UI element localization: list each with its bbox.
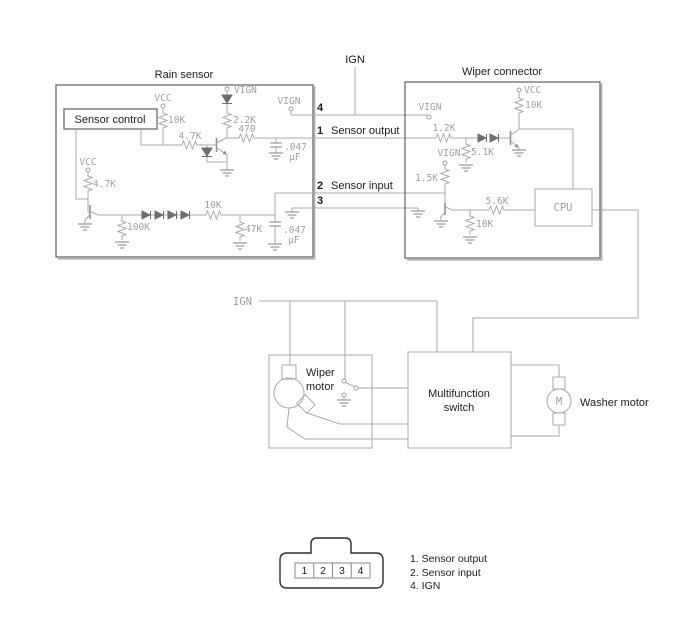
- motor-section: IGN Wiper motor Multifunction switch M W…: [233, 296, 649, 448]
- diode-icon: [478, 134, 487, 142]
- connector-pin-lines: IGN 4 1 Sensor output 2 Sensor input 3: [259, 54, 445, 208]
- wire: [519, 117, 573, 189]
- wire: [207, 157, 227, 162]
- circuit-diagram: Rain sensor Sensor control VCC 10K 4.7K …: [0, 0, 700, 640]
- ground-icon: [233, 243, 247, 249]
- resistor-icon: [159, 110, 167, 132]
- diode-icon: [181, 211, 190, 219]
- resistor-icon: [203, 211, 226, 219]
- switch-contact-icon: [354, 386, 358, 390]
- ground-icon: [512, 150, 526, 156]
- wiper-motor-icon: [274, 378, 304, 408]
- wiper-motor-label-1: Wiper: [306, 367, 335, 379]
- pin1-name: Sensor output: [331, 125, 400, 137]
- resistor-label: 47K: [245, 224, 262, 235]
- resistor-icon: [179, 141, 202, 149]
- terminal-icon: [161, 104, 165, 108]
- ground-icon: [463, 237, 477, 243]
- pin4-number: 4: [317, 102, 324, 114]
- resistor-icon: [433, 134, 456, 142]
- resistor-label: 5.6K: [486, 196, 509, 207]
- ground-icon: [78, 224, 92, 230]
- ground-icon: [269, 153, 283, 159]
- ground-icon: [268, 244, 282, 250]
- transistor-leads: [441, 207, 453, 221]
- wiper-connector-title: Wiper connector: [462, 66, 542, 78]
- connector-pin-2: 2: [320, 565, 326, 577]
- resistor-label: 1.5K: [415, 173, 438, 184]
- vign-label: VIGN: [438, 148, 461, 159]
- ign-lower-label: IGN: [233, 296, 252, 308]
- ground-icon: [434, 221, 448, 227]
- resistor-icon: [515, 95, 523, 117]
- vign-label: VIGN: [419, 102, 442, 113]
- connector-pin-3: 3: [339, 565, 345, 577]
- pin3-number: 3: [317, 195, 323, 207]
- vcc-label: VCC: [524, 85, 541, 96]
- terminal-icon: [517, 88, 521, 92]
- motor-terminal-tab: [553, 377, 565, 389]
- resistor-label: 10K: [476, 219, 493, 230]
- resistor-icon: [486, 206, 509, 214]
- wiper-connector-block: Wiper connector VIGN 1.2K 5.1K VCC 10K V…: [405, 66, 638, 352]
- pin1-number: 1: [317, 125, 323, 137]
- rain-sensor-block: Rain sensor Sensor control VCC 10K 4.7K …: [56, 69, 315, 259]
- vcc-label: VCC: [79, 157, 96, 168]
- switch-blade: [344, 383, 408, 401]
- ign-top-label: IGN: [345, 54, 365, 66]
- capacitor-icon: [270, 143, 282, 147]
- diode-icon: [155, 211, 164, 219]
- rain-sensor-box: [56, 85, 313, 257]
- switch-contact-icon: [342, 393, 346, 397]
- washer-motor-label: Washer motor: [580, 397, 649, 409]
- resistor-icon: [118, 218, 126, 240]
- resistor-label: 100K: [127, 222, 150, 233]
- resistor-icon: [236, 134, 259, 142]
- ign-wires: [259, 301, 437, 379]
- cpu-output-wire: [473, 210, 638, 352]
- wiring-diagram-page: Rain sensor Sensor control VCC 10K 4.7K …: [0, 0, 700, 640]
- washer-motor-wires: [511, 365, 559, 436]
- resistor-label: 10K: [168, 115, 185, 126]
- motor-m-label: M: [556, 396, 562, 408]
- terminal-icon: [86, 168, 90, 172]
- ground-icon: [459, 165, 473, 171]
- terminal-icon: [443, 161, 447, 165]
- motor-wire: [307, 413, 408, 424]
- resistor-label: 4.7K: [93, 179, 116, 190]
- ground-icon: [220, 170, 234, 176]
- wiper-motor-label-2: motor: [306, 381, 334, 393]
- diode-icon: [222, 95, 232, 104]
- pin2-number: 2: [317, 180, 323, 192]
- resistor-label: 5.1K: [471, 147, 494, 158]
- resistor-label: 10K: [525, 100, 542, 111]
- diode-icon: [202, 148, 212, 157]
- wire: [227, 132, 236, 138]
- terminal-icon: [289, 107, 293, 111]
- resistor-icon: [84, 173, 92, 195]
- resistor-label: 470: [238, 124, 255, 135]
- multifunction-switch-box: [408, 352, 511, 448]
- ground-icon: [411, 211, 425, 217]
- resistor-icon: [462, 141, 470, 163]
- resistor-icon: [223, 110, 231, 132]
- multifunction-label-2: switch: [444, 402, 475, 414]
- resistor-icon: [466, 213, 474, 235]
- diode-icon: [168, 211, 177, 219]
- connector-pin-4: 4: [358, 565, 364, 577]
- motor-terminal-tab: [553, 413, 565, 425]
- rain-sensor-title: Rain sensor: [155, 69, 214, 81]
- rain-sensor-box-shadow: [58, 87, 315, 259]
- connector-pin-1: 1: [301, 565, 307, 577]
- resistor-label: 10K: [204, 200, 221, 211]
- resistor-label: 1.2K: [433, 123, 456, 134]
- cpu-label: CPU: [554, 202, 573, 214]
- vign-label: VIGN: [234, 85, 257, 96]
- pin2-name: Sensor input: [331, 180, 393, 192]
- diode-icon: [490, 134, 499, 142]
- legend-line-2: 2. Sensor input: [410, 567, 481, 579]
- motor-terminal-tab: [282, 365, 296, 379]
- emitter-arrow-icon: [222, 151, 227, 155]
- resistor-icon: [236, 219, 244, 241]
- terminal-icon: [225, 87, 229, 91]
- sensor-control-label: Sensor control: [75, 114, 146, 126]
- resistor-label: 4.7K: [179, 131, 202, 142]
- switch-contact-icon: [342, 379, 346, 383]
- capacitor-icon: [269, 222, 281, 226]
- diode-icon: [142, 211, 151, 219]
- ground-icon: [115, 242, 129, 248]
- vign-pin-label: VIGN: [278, 96, 301, 107]
- capacitor-unit: µF: [288, 235, 300, 246]
- vcc-label: VCC: [154, 93, 171, 104]
- connector-pinout: 1 2 3 4 1. Sensor output 2. Sensor input…: [280, 538, 487, 592]
- ground-icon: [285, 212, 299, 218]
- terminal-icon: [427, 115, 431, 119]
- resistor-icon: [441, 166, 449, 188]
- ground-icon: [337, 400, 351, 406]
- capacitor-unit: µF: [289, 152, 301, 163]
- legend-line-1: 1. Sensor output: [410, 553, 487, 565]
- transistor-leads: [85, 211, 98, 224]
- legend-line-3: 4. IGN: [410, 580, 440, 592]
- multifunction-label-1: Multifunction: [428, 388, 490, 400]
